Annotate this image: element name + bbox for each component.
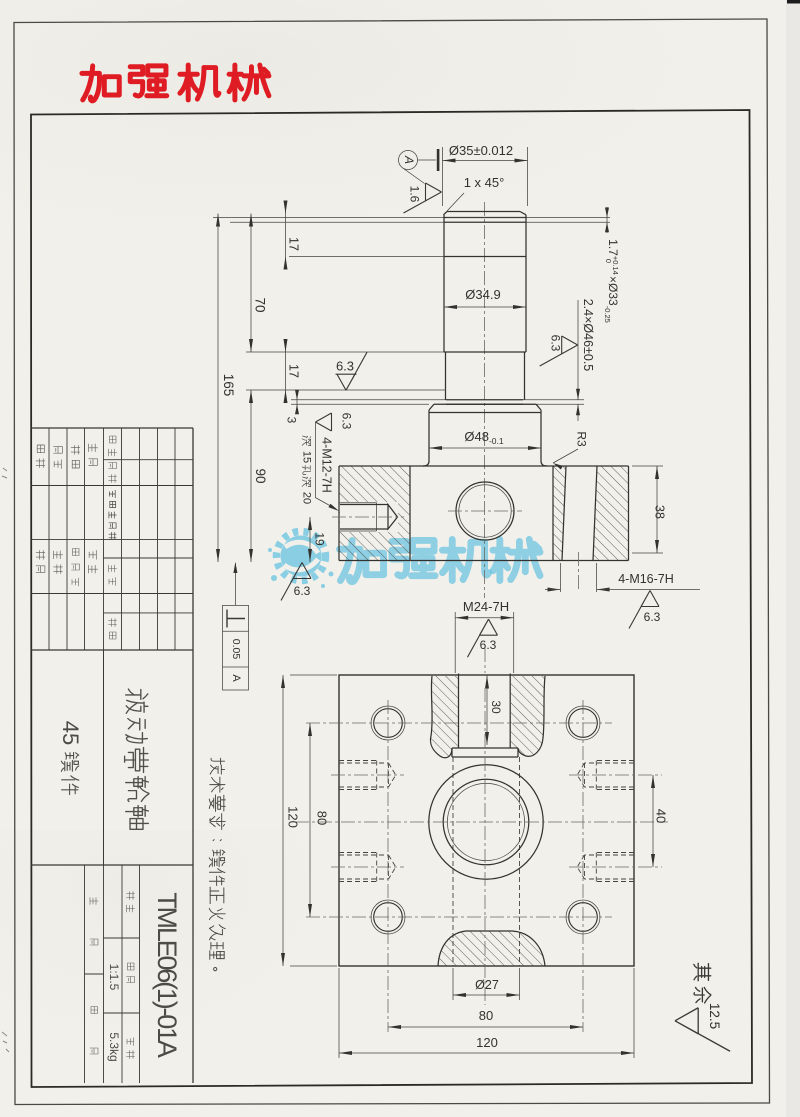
svg-text:165: 165 [221,374,236,397]
svg-text:Ø35±0.012: Ø35±0.012 [449,143,513,158]
svg-text:12.5: 12.5 [707,1003,722,1029]
svg-text:6.3: 6.3 [294,584,311,598]
svg-text:4-M16-7H: 4-M16-7H [618,572,674,586]
svg-text:40: 40 [654,809,669,823]
svg-text:5.3kg: 5.3kg [107,1032,121,1061]
svg-text:1 x 45°: 1 x 45° [464,175,505,190]
svg-text:30: 30 [489,700,503,714]
svg-text:2.4×Ø46±0.5: 2.4×Ø46±0.5 [581,299,595,372]
svg-text:Ø34.9: Ø34.9 [465,287,500,302]
svg-text:M24-7H: M24-7H [463,599,509,614]
svg-text:90: 90 [253,468,268,483]
svg-text:70: 70 [253,297,268,312]
svg-text:A: A [402,155,416,164]
svg-text:15: 15 [301,451,313,463]
svg-text:6.3: 6.3 [644,610,661,624]
svg-text:A: A [230,674,242,682]
svg-text:45: 45 [58,721,83,745]
svg-text:17: 17 [287,364,301,378]
svg-text:19: 19 [313,532,327,546]
svg-text:6.3: 6.3 [336,359,354,374]
svg-text:3: 3 [285,417,299,424]
svg-text:20: 20 [301,492,313,504]
svg-text:6.3: 6.3 [340,413,354,430]
svg-text:0.05: 0.05 [230,639,242,660]
svg-text:6.3: 6.3 [549,335,563,352]
svg-text:1:1.5: 1:1.5 [107,964,121,991]
svg-text:120: 120 [476,1035,498,1050]
svg-text:1.6: 1.6 [408,186,422,203]
svg-text:38: 38 [653,505,667,519]
svg-text:6.3: 6.3 [480,638,497,652]
svg-text:4-M12-7H: 4-M12-7H [320,437,334,493]
svg-text:17: 17 [287,237,301,251]
svg-text:80: 80 [479,1008,493,1023]
svg-text:R3: R3 [575,431,589,447]
svg-text:80: 80 [315,811,330,825]
svg-text:120: 120 [286,806,301,828]
svg-text:Ø27: Ø27 [475,978,499,992]
svg-text:TMLE06(1)-01A: TMLE06(1)-01A [152,892,182,1058]
